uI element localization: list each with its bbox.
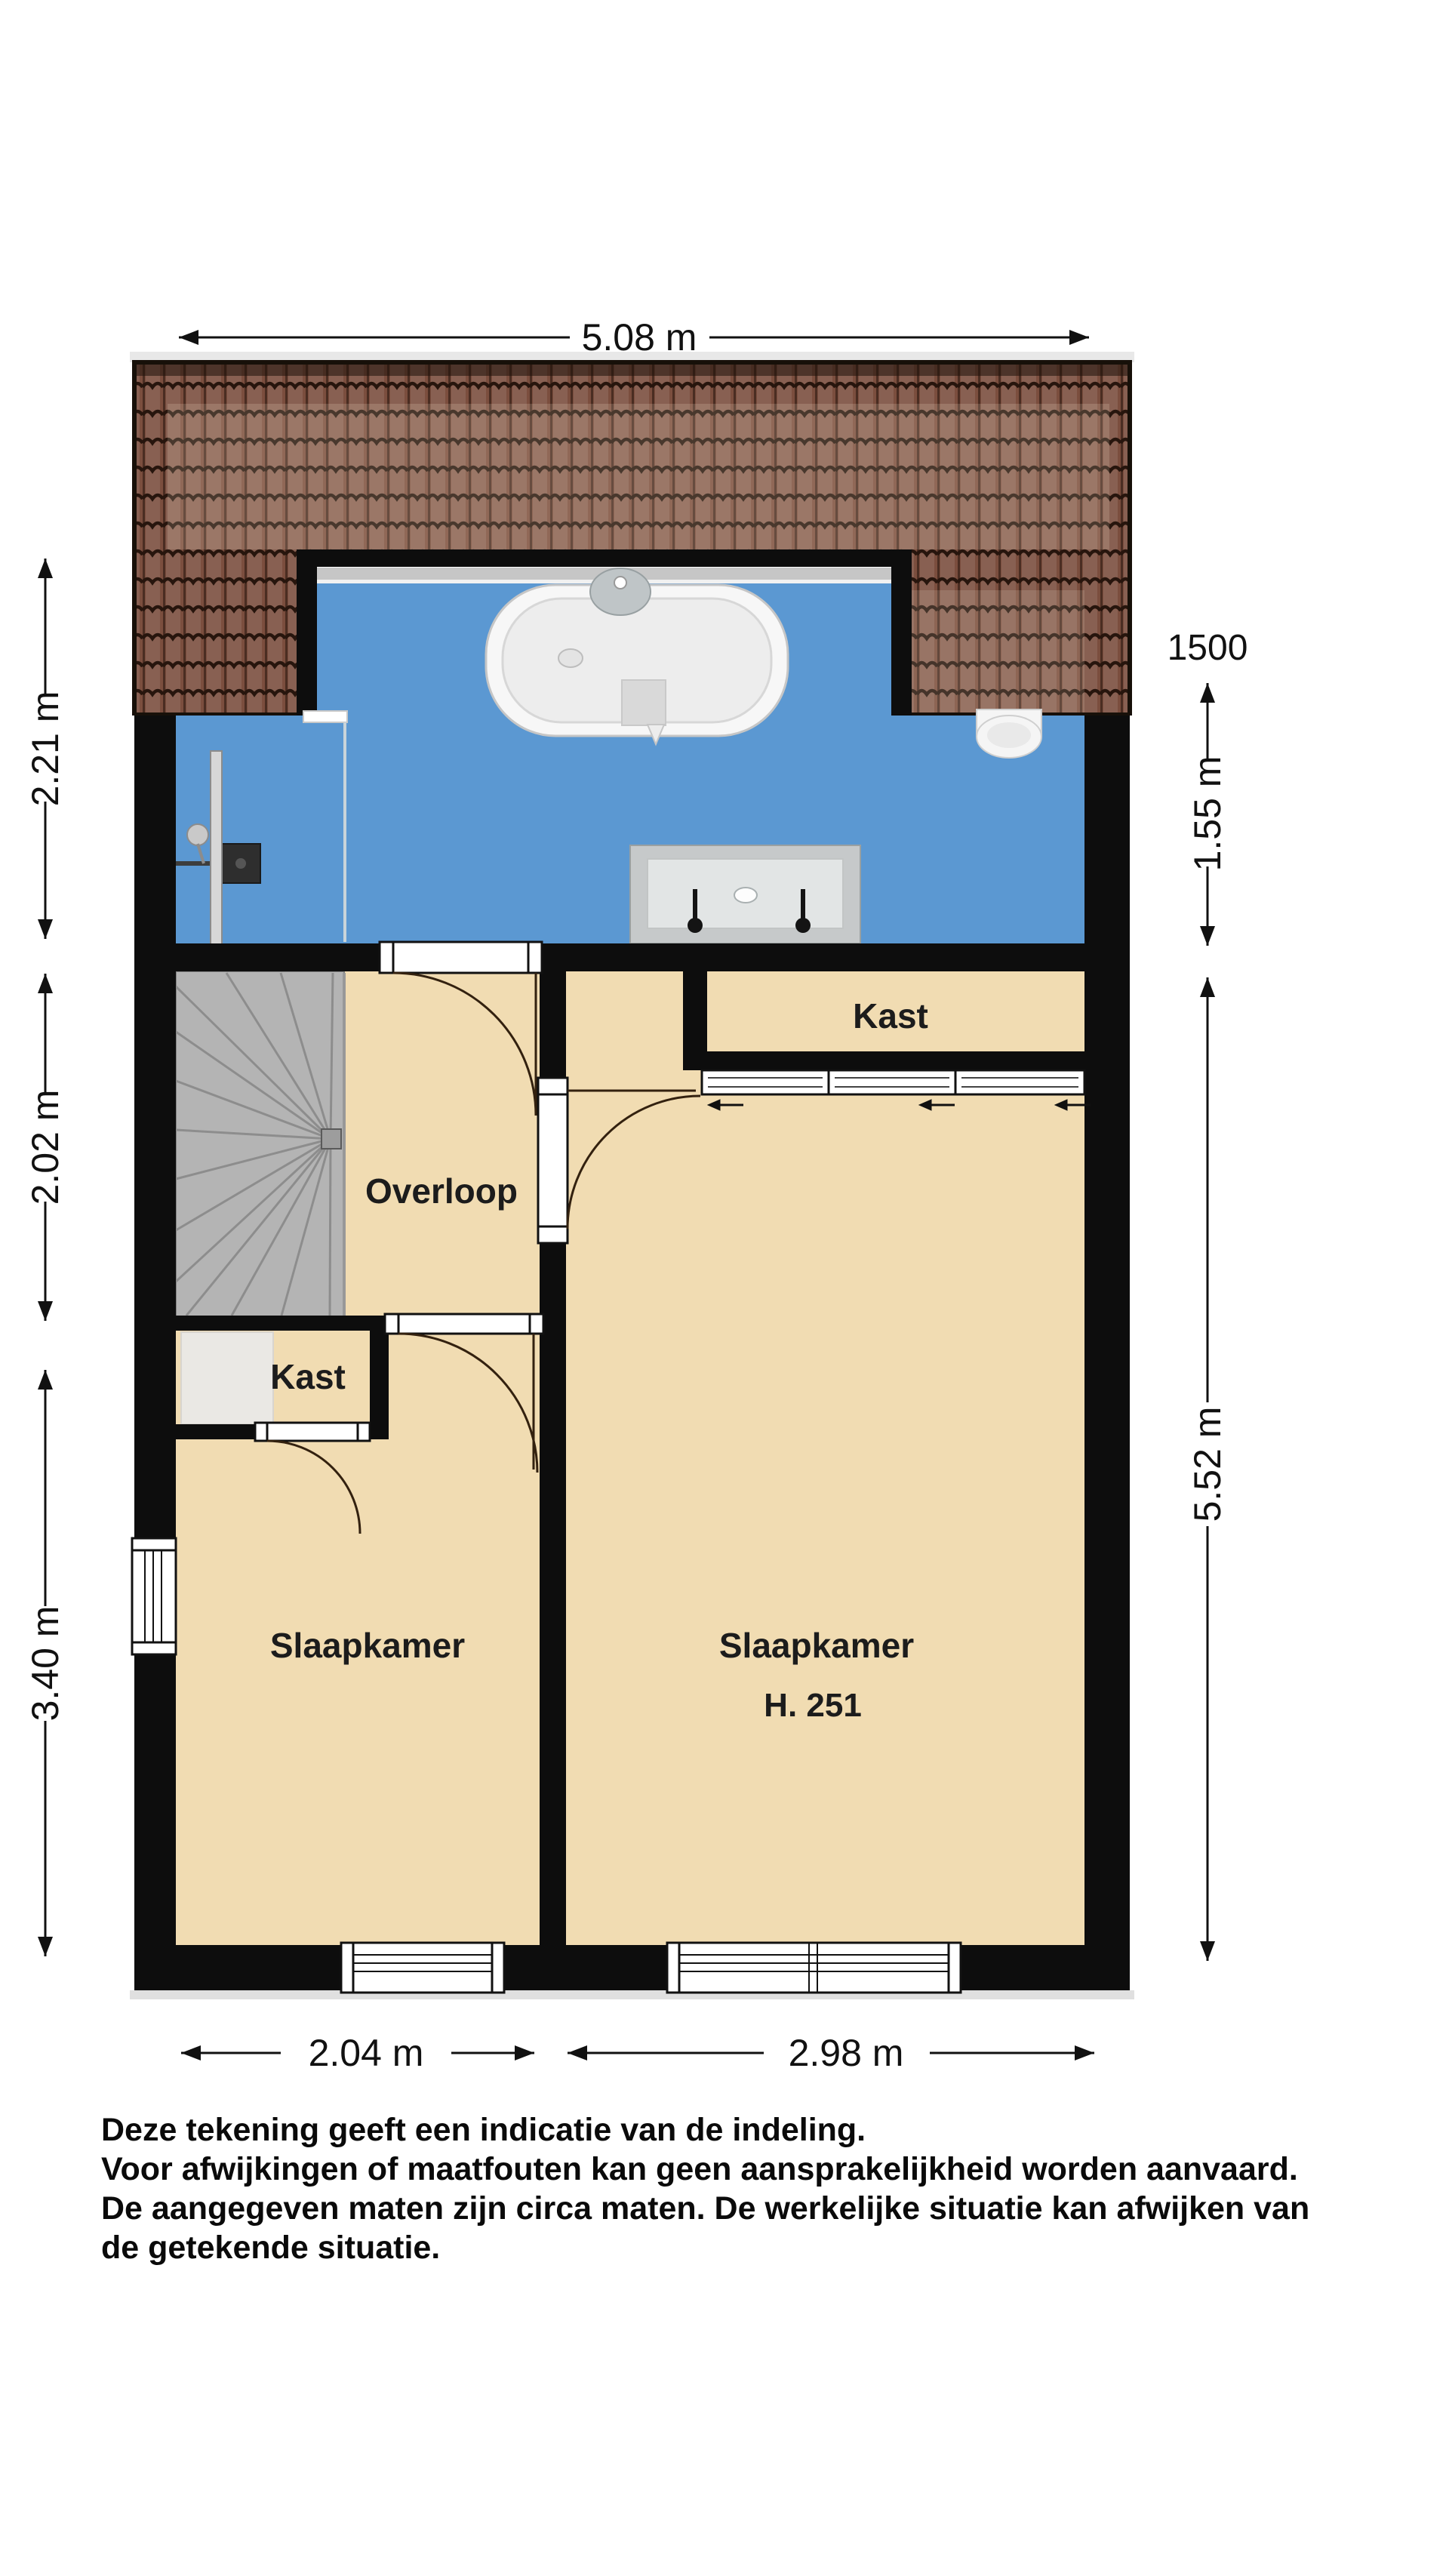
disclaimer-line-1: Deze tekening geeft een indicatie van de…: [101, 2112, 866, 2148]
label-bedroom-left: Slaapkamer: [270, 1626, 465, 1665]
window-bedroom-left-side: [132, 1538, 176, 1654]
label-bedroom-right: Slaapkamer: [719, 1626, 914, 1665]
sliding-panel-2: [829, 1070, 955, 1094]
floor-plan-canvas: Overloop Kast Kast Slaapkamer Slaapkamer…: [0, 0, 1449, 2576]
dimension-left-lower: 3.40 m: [24, 1370, 66, 1956]
window-frame: [667, 1943, 961, 1993]
toilet-seat: [987, 722, 1031, 748]
disclaimer-line-3: De aangegeven maten zijn circa maten. De…: [101, 2190, 1309, 2227]
bathtub-faucet-knob: [614, 577, 626, 589]
wall-closet-large-bottom: [683, 1051, 1084, 1070]
closet-small-storage: [181, 1332, 273, 1424]
disclaimer-line-4: de getekende situatie.: [101, 2230, 440, 2266]
dimension-bottom-left: 2.04 m: [181, 2032, 534, 2074]
staircase-newel-post: [321, 1129, 341, 1149]
door-opening: [380, 942, 542, 973]
disclaimer-text: Deze tekening geeft een indicatie van de…: [101, 2112, 1309, 2266]
dimension-bottom-right: 2.98 m: [568, 2032, 1094, 2074]
door-opening: [538, 1078, 568, 1243]
wall-outer-right: [1084, 716, 1130, 1990]
roof-highlight-right: [912, 590, 1084, 716]
disclaimer-line-2: Voor afwijkingen of maatfouten kan geen …: [101, 2151, 1298, 2187]
roof-highlight-middle: [168, 404, 1109, 549]
staircase: [176, 971, 344, 1317]
dimension-bottom-left-label: 2.04 m: [309, 2032, 424, 2074]
dimension-top-label: 5.08 m: [582, 316, 697, 359]
door-opening: [385, 1314, 543, 1334]
dimension-left-upper: 2.21 m: [24, 559, 66, 939]
label-bedroom-right-height: H. 251: [764, 1687, 862, 1724]
wall-bathroom-bottom: [176, 943, 1084, 971]
shower-handset: [187, 824, 208, 845]
dimension-bottom-right-label: 2.98 m: [789, 2032, 904, 2074]
label-closet-small: Kast: [270, 1357, 346, 1396]
dimension-left-lower-label: 3.40 m: [24, 1606, 66, 1722]
plan-shadow-bottom: [130, 1990, 1134, 1999]
dimension-right-lower-label: 5.52 m: [1186, 1407, 1229, 1522]
window-bedroom-right-bottom: [667, 1943, 961, 1993]
label-closet-large: Kast: [853, 996, 928, 1036]
shower-head-nozzle: [235, 858, 246, 869]
dimension-right-upper-label: 1.55 m: [1186, 756, 1229, 872]
bathtub-drain: [558, 649, 583, 667]
window-bedroom-left-bottom: [341, 1943, 504, 1993]
roof-column-left: [134, 551, 297, 716]
wall-under-stairs: [176, 1316, 389, 1331]
vanity-drain: [734, 888, 757, 903]
sliding-panel-1: [702, 1070, 829, 1094]
dimension-left-upper-label: 2.21 m: [24, 691, 66, 807]
label-landing: Overloop: [365, 1171, 518, 1211]
inset-wall-top: [297, 549, 912, 567]
inset-wall-right: [891, 549, 912, 719]
bathtub-faucet: [590, 568, 651, 615]
wall-outer-bottom: [134, 1945, 1130, 1990]
inset-wall-left: [297, 549, 317, 719]
vanity-sink: [630, 845, 860, 943]
toilet: [977, 709, 1041, 758]
vanity-faucet-right-knob: [795, 918, 811, 933]
dimension-right-upper: 1.55 m: [1186, 683, 1229, 946]
door-opening: [255, 1423, 370, 1441]
bathtub: [486, 568, 788, 744]
dimension-left-middle-label: 2.02 m: [24, 1090, 66, 1205]
dimension-right-lower: 5.52 m: [1186, 977, 1229, 1961]
shower-rail: [211, 751, 222, 946]
bathtub-step: [622, 680, 666, 725]
shower-ledge: [303, 711, 347, 722]
dimension-left-middle: 2.02 m: [24, 974, 66, 1321]
wall-outer-left: [134, 716, 176, 1990]
sliding-panel-3: [955, 1070, 1084, 1094]
vanity-faucet-left-knob: [688, 918, 703, 933]
window-frame: [341, 1943, 504, 1993]
height-marker-1500: 1500: [1168, 628, 1248, 668]
wall-closet-small-right: [370, 1331, 389, 1439]
